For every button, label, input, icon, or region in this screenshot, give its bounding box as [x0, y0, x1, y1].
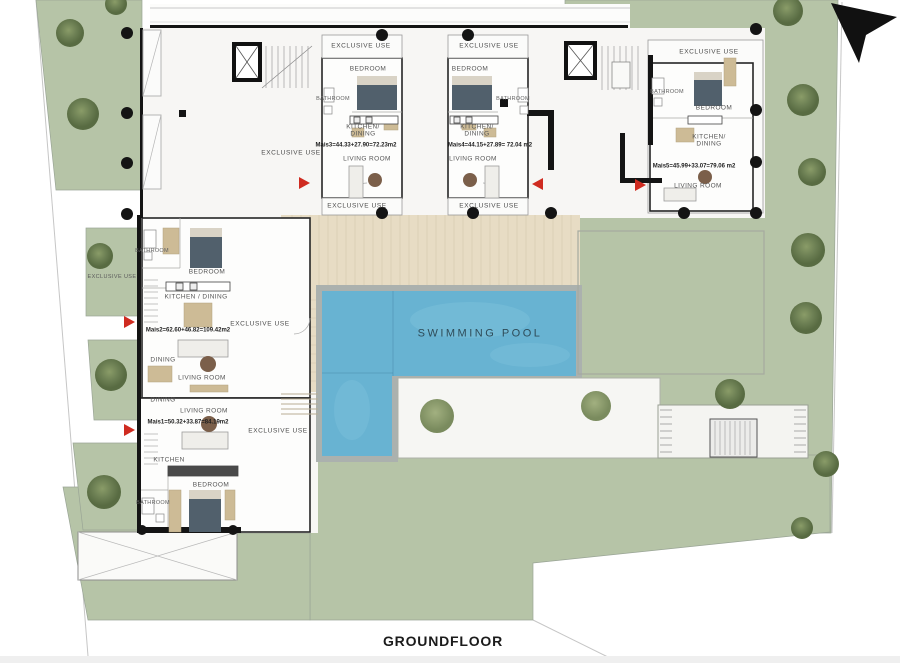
site-plan-drawing	[0, 0, 900, 663]
bottom-edge-bar	[0, 656, 900, 663]
entry-marker-mais1	[124, 424, 135, 436]
hedge-left-1	[86, 228, 138, 316]
groundfloor-plan: EXCLUSIVE USE EXCLUSIVE USE EXCLUSIVE US…	[0, 0, 900, 663]
entry-marker-mais2	[124, 316, 135, 328]
lawn-bottom-right	[310, 455, 830, 620]
